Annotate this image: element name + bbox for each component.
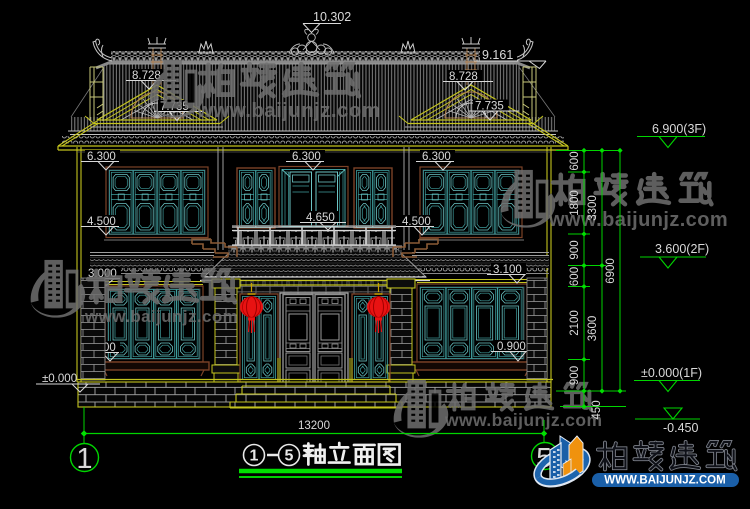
svg-text:600: 600 — [569, 151, 581, 170]
svg-text:13200: 13200 — [298, 420, 330, 432]
svg-text:WWW.BAIJUNJZ.COM: WWW.BAIJUNJZ.COM — [604, 475, 725, 487]
svg-text:1: 1 — [76, 443, 92, 475]
svg-text:450: 450 — [591, 400, 603, 419]
svg-text:±0.000(1F): ±0.000(1F) — [641, 366, 702, 380]
svg-text:9.161: 9.161 — [482, 48, 513, 62]
svg-text:5: 5 — [285, 448, 294, 465]
svg-text:-0.450: -0.450 — [663, 421, 698, 435]
svg-text:2100: 2100 — [569, 310, 581, 336]
svg-text:600: 600 — [569, 267, 581, 286]
svg-text:±0.000: ±0.000 — [42, 373, 77, 385]
svg-text:1: 1 — [250, 448, 259, 465]
svg-text:3300: 3300 — [587, 195, 599, 221]
svg-text:900: 900 — [569, 240, 581, 259]
svg-text:6900: 6900 — [605, 258, 617, 284]
svg-text:1800: 1800 — [569, 190, 581, 216]
svg-text:www.baijunjz.com: www.baijunjz.com — [444, 410, 602, 430]
svg-text:6.900(3F): 6.900(3F) — [652, 122, 706, 136]
svg-text:www.baijunjz.com: www.baijunjz.com — [84, 307, 238, 326]
svg-text:10.302: 10.302 — [313, 10, 351, 24]
svg-text:3.600(2F): 3.600(2F) — [655, 242, 709, 256]
svg-text:3600: 3600 — [587, 316, 599, 342]
svg-text:900: 900 — [569, 366, 581, 385]
svg-text:www.baijunjz.com: www.baijunjz.com — [196, 99, 380, 122]
